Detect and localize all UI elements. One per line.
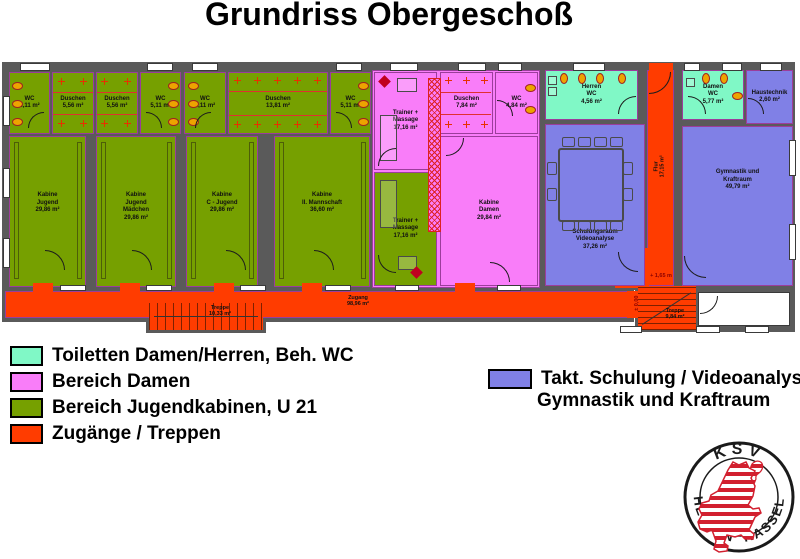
toilet-icon (358, 82, 369, 90)
toilet-icon (525, 84, 536, 92)
toilet-icon (168, 82, 179, 90)
room-label: Kabine C - Jugend 29,86 m² (207, 192, 238, 215)
stair-label: Treppe 10,33 m² (196, 305, 244, 318)
window (325, 285, 351, 291)
legend-label: Gymnastik und Kraftraum (537, 390, 770, 412)
legend-swatch-blue (488, 369, 532, 389)
legend-label: Toiletten Damen/Herren, Beh. WC (52, 345, 354, 367)
bench (77, 142, 82, 279)
room-label: Gymnastik und Kraftraum 49,79 m² (716, 169, 759, 192)
window (146, 285, 172, 291)
chair (594, 137, 607, 147)
floorplan-page: { "title": "Grundriss Obergeschoß", "col… (0, 0, 800, 556)
legend-label: Bereich Damen (52, 371, 190, 393)
shower-cross-icon (314, 77, 321, 84)
shower-cross-icon (445, 121, 452, 128)
toilet-icon (188, 100, 199, 108)
shower-cross-icon (234, 121, 241, 128)
chair (623, 188, 633, 201)
legend-swatch-orange (10, 424, 43, 444)
shower-cross-icon (445, 77, 452, 84)
sink-icon (548, 87, 557, 96)
window (458, 63, 486, 71)
sink-icon (686, 78, 695, 87)
bench (361, 142, 366, 279)
chair (562, 137, 575, 147)
entry-top (649, 63, 673, 72)
legend-item-zugaenge: Zugänge / Treppen (10, 423, 221, 445)
corridor-label: Zugang 98,96 m² (330, 295, 386, 308)
shower-cross-icon (80, 120, 87, 127)
shower-divider (229, 115, 327, 116)
shower-divider (229, 91, 327, 92)
toilet-icon (358, 100, 369, 108)
shower-cross-icon (481, 121, 488, 128)
room-label: Kabine Damen 29,84 m² (477, 200, 501, 223)
ksv-hessen-kassel-logo: KSV HESSEN KASSEL (682, 440, 796, 554)
toilet-icon (596, 73, 604, 84)
window (684, 63, 700, 71)
door-gap (33, 283, 53, 292)
window (760, 63, 782, 71)
legend-item-gymnastik: Gymnastik und Kraftraum (537, 390, 770, 412)
toilet-icon (578, 73, 586, 84)
room-kabine: Kabine C - Jugend 29,86 m² (186, 136, 258, 287)
toilet-icon (12, 118, 23, 126)
conference-table (558, 148, 624, 222)
door-gap (120, 283, 140, 292)
window (20, 63, 50, 71)
shower-cross-icon (481, 77, 488, 84)
room-label: Duschen 7,84 m² (454, 96, 479, 111)
shower-cross-icon (124, 120, 131, 127)
shower-divider (97, 92, 137, 93)
toilet-icon (12, 82, 23, 90)
room-label: Kabine II. Mannschaft 36,60 m² (302, 192, 342, 215)
window (3, 168, 10, 198)
legend-item-jugendkabinen: Bereich Jugendkabinen, U 21 (10, 397, 317, 419)
toilet-icon (618, 73, 626, 84)
shower-divider (97, 114, 137, 115)
window (696, 326, 720, 333)
window (240, 285, 266, 291)
shower-cross-icon (58, 120, 65, 127)
toilet-icon (358, 118, 369, 126)
legend-swatch-mint (10, 346, 43, 366)
level-annotation: + 1,65 m (640, 273, 682, 279)
toilet-icon (702, 73, 710, 84)
chair (623, 162, 633, 175)
shower-cross-icon (254, 77, 261, 84)
room-label: Damen WC 5,77 m² (703, 84, 724, 107)
window (789, 224, 796, 260)
toilet-icon (560, 73, 568, 84)
shower-cross-icon (101, 120, 108, 127)
door-gap (455, 283, 475, 292)
room-haustechnik: Haustechnik 2,60 m² (746, 70, 793, 124)
window (789, 140, 796, 176)
room-label: Herren WC 4,56 m² (581, 84, 602, 107)
room-label: Duschen 5,56 m² (104, 96, 129, 111)
legend-label: Zugänge / Treppen (52, 423, 221, 445)
legend-swatch-pink (10, 372, 43, 392)
legend-label: Bereich Jugendkabinen, U 21 (52, 397, 317, 419)
bench (191, 142, 196, 279)
desk (397, 78, 417, 92)
window (497, 285, 521, 291)
room-kabine-damen: Kabine Damen 29,84 m² (440, 136, 538, 286)
chair (547, 162, 557, 175)
window (336, 63, 362, 71)
shower-cross-icon (80, 78, 87, 85)
chair (594, 221, 607, 231)
corridor-label: Flur 17,15 m² (654, 138, 667, 194)
corridor-zugang (5, 291, 631, 318)
shower-cross-icon (254, 121, 261, 128)
sink-icon (548, 76, 557, 85)
toilet-icon (732, 92, 743, 100)
shower-cross-icon (463, 121, 470, 128)
shower-cross-icon (274, 77, 281, 84)
window (147, 63, 173, 71)
shower-cross-icon (101, 78, 108, 85)
toilet-icon (168, 100, 179, 108)
bench (14, 142, 19, 279)
shower-cross-icon (294, 77, 301, 84)
massage-table (380, 180, 397, 228)
window (573, 63, 605, 71)
toilet-icon (12, 100, 23, 108)
shower-cross-icon (314, 121, 321, 128)
shower-divider (53, 114, 93, 115)
window (395, 285, 419, 291)
chair (547, 188, 557, 201)
shower-cross-icon (294, 121, 301, 128)
toilet-icon (168, 118, 179, 126)
chair (610, 221, 623, 231)
shower-cross-icon (124, 78, 131, 85)
room-label: Schulungsraum Videoanalyse 37,26 m² (572, 229, 617, 252)
room-label: Duschen 5,56 m² (60, 96, 85, 111)
window (745, 326, 769, 333)
legend-item-toiletten: Toiletten Damen/Herren, Beh. WC (10, 345, 354, 367)
window (60, 285, 86, 291)
legend-item-schulung: Takt. Schulung / Videoanalyse (488, 368, 800, 390)
window (3, 96, 10, 126)
room-label: Kabine Jugend Mädchen 29,86 m² (123, 192, 149, 222)
chair (610, 137, 623, 147)
room-label: Kabine Jugend 29,86 m² (35, 192, 59, 215)
legend-label: Takt. Schulung / Videoanalyse (541, 368, 800, 390)
window (498, 63, 522, 71)
toilet-icon (188, 82, 199, 90)
shower-cross-icon (463, 77, 470, 84)
stair-label: Treppe 9,84 m² (654, 308, 696, 321)
shower-divider (53, 92, 93, 93)
window (192, 63, 218, 71)
logo-badge-icon: KSV HESSEN KASSEL (682, 440, 796, 554)
page-title: Grundriss Obergeschoß (0, 0, 778, 33)
bench (167, 142, 172, 279)
door-gap (302, 283, 322, 292)
window (390, 63, 418, 71)
room-label: Duschen 13,81 m² (265, 96, 290, 111)
shower-cross-icon (58, 78, 65, 85)
chair (578, 137, 591, 147)
window (3, 238, 10, 268)
shower-divider (441, 92, 491, 93)
legend-swatch-olive (10, 398, 43, 418)
level-annotation: ± 0,00 (634, 288, 640, 318)
window (620, 326, 642, 333)
toilet-icon (525, 106, 536, 114)
chair (578, 221, 591, 231)
bench (101, 142, 106, 279)
shower-cross-icon (274, 121, 281, 128)
chair (562, 221, 575, 231)
door-gap (214, 283, 234, 292)
window (722, 63, 742, 71)
shower-divider (441, 114, 491, 115)
bench (279, 142, 284, 279)
toilet-icon (720, 73, 728, 84)
legend-item-damen: Bereich Damen (10, 371, 190, 393)
shower-cross-icon (234, 77, 241, 84)
locker-row-icon (428, 78, 441, 232)
bench (249, 142, 254, 279)
